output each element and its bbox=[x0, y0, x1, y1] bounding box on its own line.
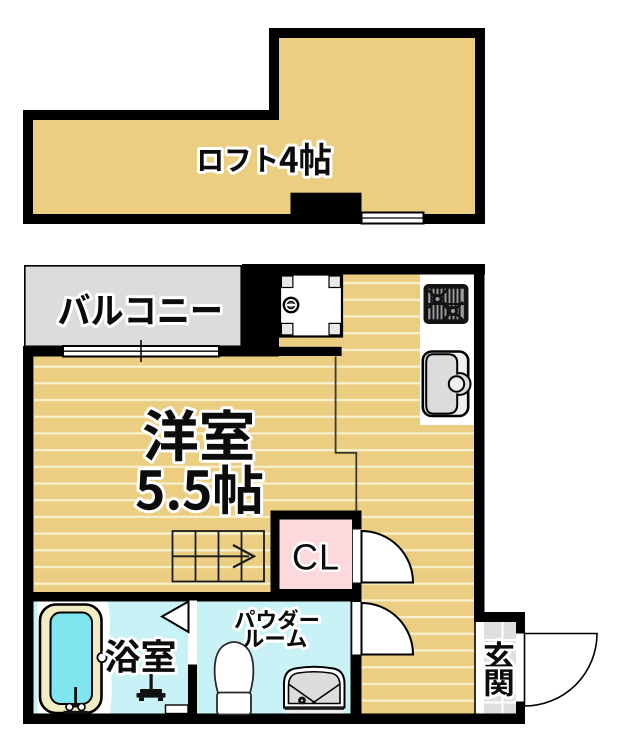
svg-text:CL: CL bbox=[292, 537, 340, 578]
